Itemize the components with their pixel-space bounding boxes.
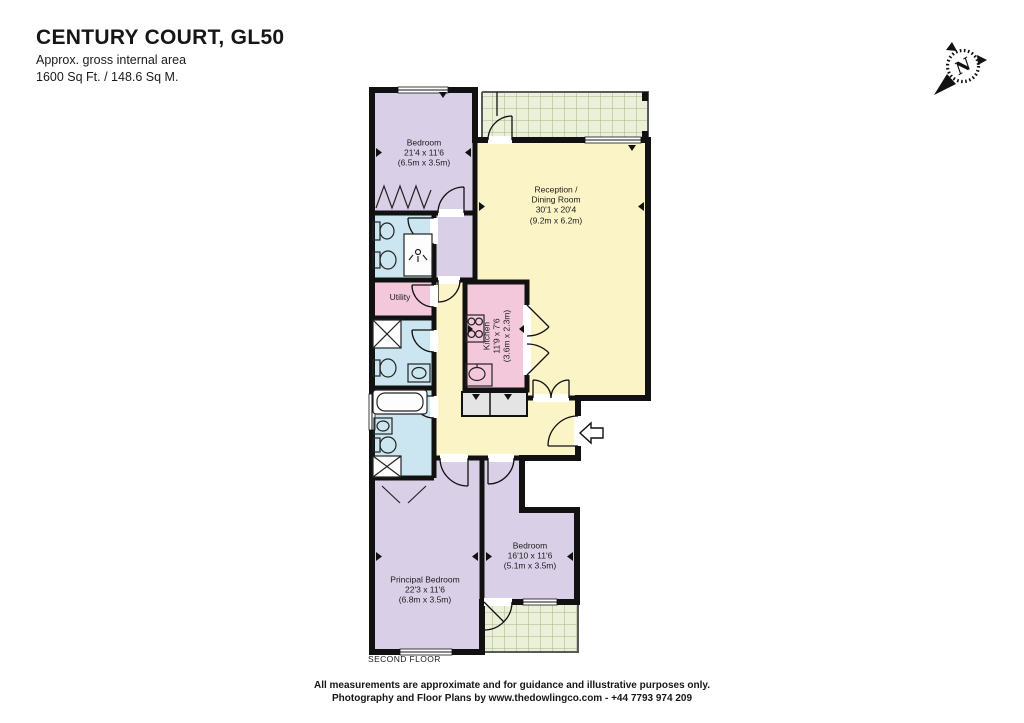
compass-arrow-large (934, 74, 956, 95)
room-dims-imperial: 11'9 x 7'6 (492, 310, 502, 362)
label-kitchen: Kitchen 11'9 x 7'6 (3.6m x 2.3m) (482, 310, 513, 362)
room-name: Bedroom (504, 541, 556, 551)
wall-stub (642, 92, 648, 101)
cupboard-fill (462, 392, 527, 416)
room-name: Dining Room (530, 195, 582, 205)
room-principal-bedroom (372, 458, 482, 652)
room-dims-imperial: 22'3 x 11'6 (390, 585, 459, 595)
room-corridor (433, 213, 475, 280)
room-name: Bedroom (398, 138, 450, 148)
room-bedroom-2 (482, 458, 577, 602)
window (585, 137, 641, 143)
room-dims-imperial: 30'1 x 20'4 (530, 205, 582, 215)
label-bedroom-2: Bedroom 16'10 x 11'6 (5.1m x 3.5m) (504, 541, 556, 572)
room-name: Reception / (530, 185, 582, 195)
label-reception: Reception / Dining Room 30'1 x 20'4 (9.2… (530, 185, 582, 226)
bathroom1-shower (404, 234, 432, 276)
compass-arrow-small-right (977, 55, 987, 65)
label-utility: Utility (390, 292, 411, 302)
entry-arrow-icon (580, 423, 603, 443)
balcony-bottom (478, 602, 578, 652)
floorplan-page: CENTURY COURT, GL50 Approx. gross intern… (0, 0, 1024, 723)
shower-room-shower (373, 320, 401, 348)
footer-credit: Photography and Floor Plans by www.thedo… (0, 692, 1024, 705)
label-bedroom-top: Bedroom 21'4 x 11'6 (6.5m x 3.5m) (398, 138, 450, 169)
room-name: Utility (390, 292, 411, 302)
floor-label: SECOND FLOOR (368, 654, 441, 664)
balcony-bottom-grid (478, 602, 578, 652)
window (523, 599, 557, 605)
bathtub (373, 390, 427, 414)
room-dims-metric: (9.2m x 6.2m) (530, 215, 582, 225)
room-dims-imperial: 16'10 x 11'6 (504, 551, 556, 561)
footer: All measurements are approximate and for… (0, 679, 1024, 705)
footer-disclaimer: All measurements are approximate and for… (0, 679, 1024, 692)
room-dims-metric: (3.6m x 2.3m) (502, 310, 512, 362)
compass: N (934, 42, 987, 95)
room-dims-imperial: 21'4 x 11'6 (398, 148, 450, 158)
hall-cupboards (462, 392, 527, 416)
room-dims-metric: (6.8m x 3.5m) (390, 595, 459, 605)
room-name: Kitchen (482, 310, 492, 362)
bathroom2-shower (373, 456, 401, 477)
label-principal-bedroom: Principal Bedroom 22'3 x 11'6 (6.8m x 3.… (390, 575, 459, 606)
compass-arrow-small-top (946, 42, 957, 51)
compass-north-label: N (951, 54, 977, 80)
room-dims-metric: (5.1m x 3.5m) (504, 561, 556, 571)
room-dims-metric: (6.5m x 3.5m) (398, 158, 450, 168)
room-name: Principal Bedroom (390, 575, 459, 585)
